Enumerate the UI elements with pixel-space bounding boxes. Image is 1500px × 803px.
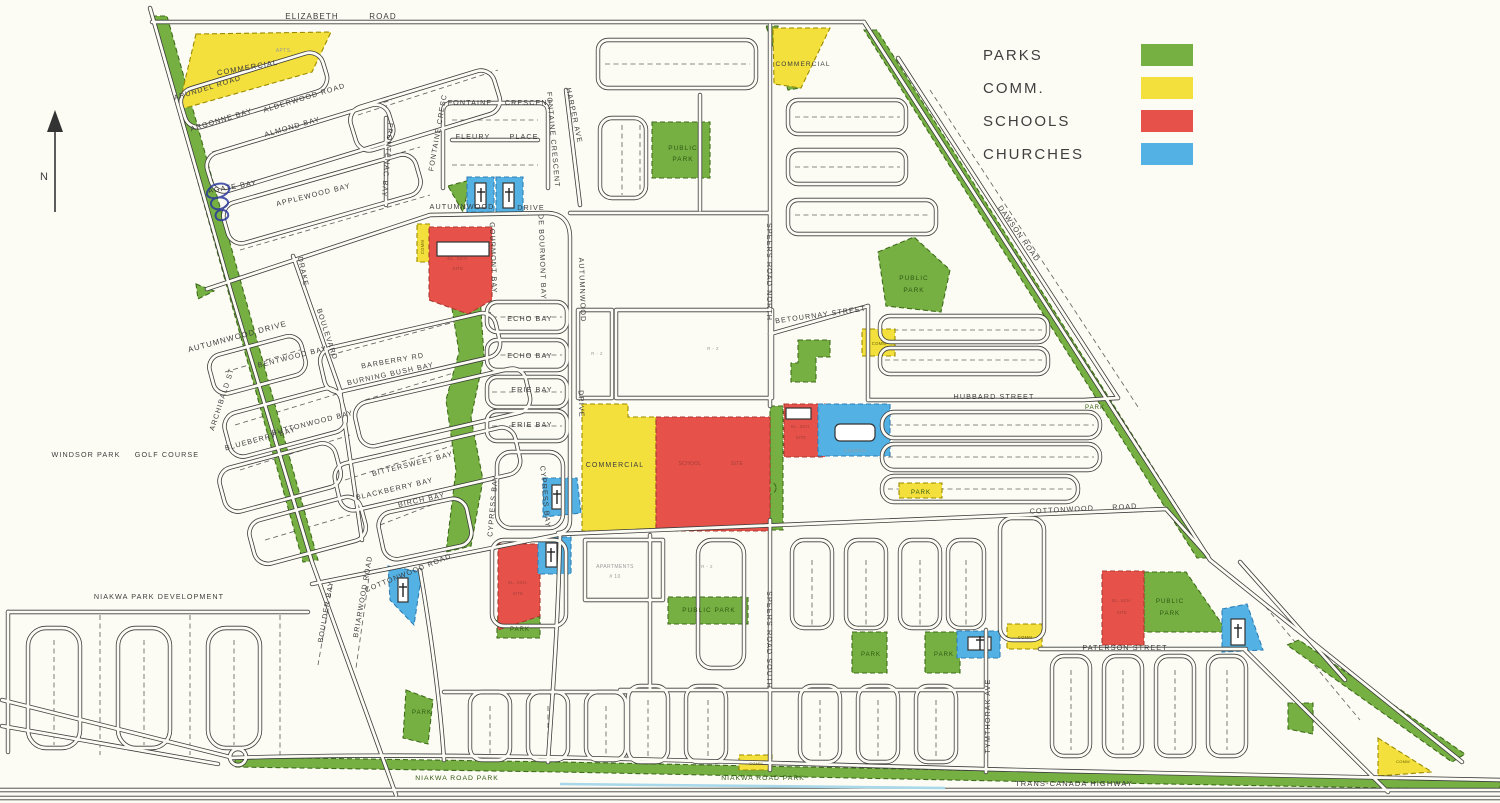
map-label: APTS. bbox=[276, 48, 292, 54]
legend-row-schools: SCHOOLS bbox=[983, 110, 1193, 132]
map-label: EL. SCH. bbox=[791, 424, 811, 429]
map-label: COMMERCIAL bbox=[775, 61, 830, 68]
zone-school bbox=[1102, 571, 1144, 645]
map-label: COMM bbox=[872, 341, 887, 346]
map-label: ECHO BAY bbox=[507, 314, 552, 323]
map-label: PARK bbox=[1085, 405, 1105, 411]
map-label: DE BOURMONT BAY bbox=[536, 214, 548, 300]
schools-swatch-icon bbox=[1141, 110, 1193, 132]
map-label: FONTAINE bbox=[448, 98, 493, 107]
zone-school bbox=[656, 417, 770, 531]
zone-comm bbox=[1378, 738, 1432, 776]
map-label: ELIZABETH bbox=[285, 12, 338, 21]
zone-footprint bbox=[786, 408, 811, 419]
map-label: COMMERCIAL bbox=[586, 462, 644, 469]
map-label: SPEERS ROAD SOUTH bbox=[765, 591, 774, 689]
north-arrow: N bbox=[40, 110, 63, 212]
zone-park bbox=[403, 690, 433, 744]
map-label: PUBLIC bbox=[668, 145, 697, 152]
map-label: PARK bbox=[672, 156, 693, 163]
map-label: PLACE bbox=[509, 132, 538, 141]
map-label: SCHOOL bbox=[679, 461, 702, 467]
map-label: AGATE BAY bbox=[207, 178, 257, 195]
legend-label-churches: CHURCHES bbox=[983, 146, 1127, 163]
map-label: COMM bbox=[1018, 635, 1033, 640]
legend-label-parks: PARKS bbox=[983, 47, 1127, 64]
map-label: ECHO BAY bbox=[507, 351, 552, 360]
map-label: NIAKWA PARK DEVELOPMENT bbox=[94, 592, 224, 601]
north-label: N bbox=[40, 171, 49, 183]
map-label: ROAD bbox=[1112, 501, 1138, 511]
map-label: PATERSON STREET bbox=[1082, 643, 1167, 652]
map-label: COMM bbox=[420, 240, 425, 255]
map-label: SITE bbox=[1117, 610, 1128, 615]
zone-footprint bbox=[835, 424, 875, 441]
map-label: PUBLIC PARK bbox=[682, 607, 736, 614]
map-label: HUBBARD STREET bbox=[954, 392, 1035, 401]
map-label: SITE bbox=[452, 266, 463, 271]
map-label: DRIVE bbox=[577, 390, 587, 418]
map-label: BENTWOOD BAY bbox=[257, 344, 328, 370]
zoning-map-page: ELIZABETHROADARUNDEL ROADALDERWOOD ROADA… bbox=[0, 0, 1500, 803]
map-label: PARK bbox=[903, 287, 924, 294]
map-label: PARK bbox=[934, 652, 954, 658]
map-label: APARTMENTS bbox=[596, 564, 634, 570]
map-label: ARGONNE BAY bbox=[189, 106, 253, 133]
map-label: EL. SCH. bbox=[508, 580, 528, 585]
map-label: PARK bbox=[911, 490, 931, 496]
parks-swatch-icon bbox=[1141, 44, 1193, 66]
map-label: PARK bbox=[861, 652, 881, 658]
zone-school bbox=[498, 544, 540, 630]
map-label: FLEURY bbox=[456, 132, 491, 141]
map-label: CYPRESS BAY bbox=[538, 465, 552, 528]
map-label: R - 2 bbox=[707, 346, 719, 351]
legend-row-parks: PARKS bbox=[983, 44, 1193, 66]
legend: PARKS COMM. SCHOOLS CHURCHES bbox=[983, 44, 1193, 176]
legend-label-comm: COMM. bbox=[983, 80, 1127, 97]
map-label: ALDERWOOD ROAD bbox=[262, 81, 346, 115]
creek-line bbox=[560, 784, 945, 788]
map-label: COMM bbox=[749, 761, 763, 766]
map-label: CHURCH bbox=[844, 448, 866, 453]
map-label: EL. SCH. bbox=[1112, 598, 1132, 603]
comm-swatch-icon bbox=[1141, 77, 1193, 99]
map-label: PUBLIC bbox=[899, 275, 928, 282]
map-label: SITE bbox=[513, 591, 524, 596]
map-label: ROAD bbox=[369, 12, 397, 21]
map-label: ERIE BAY bbox=[511, 385, 552, 394]
map-label: # 10 bbox=[609, 574, 620, 580]
map-label: BRIARWOOD ROAD bbox=[351, 555, 374, 638]
map-label: WINDSOR PARK bbox=[52, 450, 121, 459]
map-label: SPEERS ROAD NORTH bbox=[765, 223, 774, 321]
map-label: ALMOND BAY bbox=[263, 114, 321, 139]
map-label: TYMTHORAK AVE bbox=[983, 679, 992, 754]
map-label: PARK bbox=[510, 627, 530, 633]
map-label: COMM bbox=[1396, 759, 1410, 764]
churches-swatch-icon bbox=[1141, 143, 1193, 165]
map-label: PUBLIC bbox=[1156, 598, 1184, 605]
legend-row-comm: COMM. bbox=[983, 77, 1193, 99]
map-label: BOULDER BAY bbox=[316, 580, 336, 643]
map-label: ERIE BAY bbox=[511, 420, 552, 429]
map-label: EL. SCH. bbox=[447, 256, 468, 261]
map-label: BETOURNAY STREET bbox=[775, 304, 867, 326]
map-label: R - 2 bbox=[591, 351, 603, 356]
map-canvas: ELIZABETHROADARUNDEL ROADALDERWOOD ROADA… bbox=[0, 0, 1500, 803]
map-label: DRIVE bbox=[517, 203, 544, 212]
map-label: NIAKWA ROAD PARK bbox=[721, 775, 805, 782]
zone-park bbox=[770, 406, 783, 530]
map-label: SITE bbox=[731, 461, 744, 467]
zone-park bbox=[791, 340, 830, 382]
map-label: AUTUMNWOOD bbox=[430, 202, 495, 211]
map-label: PARK bbox=[1160, 610, 1180, 617]
zone-footprint bbox=[437, 242, 489, 256]
map-label: SITE bbox=[796, 435, 807, 440]
map-label: TRANS-CANADA HIGHWAY bbox=[1015, 779, 1133, 788]
zone-comm bbox=[773, 28, 830, 88]
map-label: BUTTONWOOD BAY bbox=[271, 408, 355, 437]
legend-row-churches: CHURCHES bbox=[983, 143, 1193, 165]
map-label: GOLF COURSE bbox=[135, 450, 199, 459]
map-label: PARK bbox=[412, 710, 432, 716]
legend-label-schools: SCHOOLS bbox=[983, 113, 1127, 130]
map-label: NIAKWA ROAD PARK bbox=[415, 775, 499, 782]
map-label: R - 2 bbox=[701, 564, 713, 569]
